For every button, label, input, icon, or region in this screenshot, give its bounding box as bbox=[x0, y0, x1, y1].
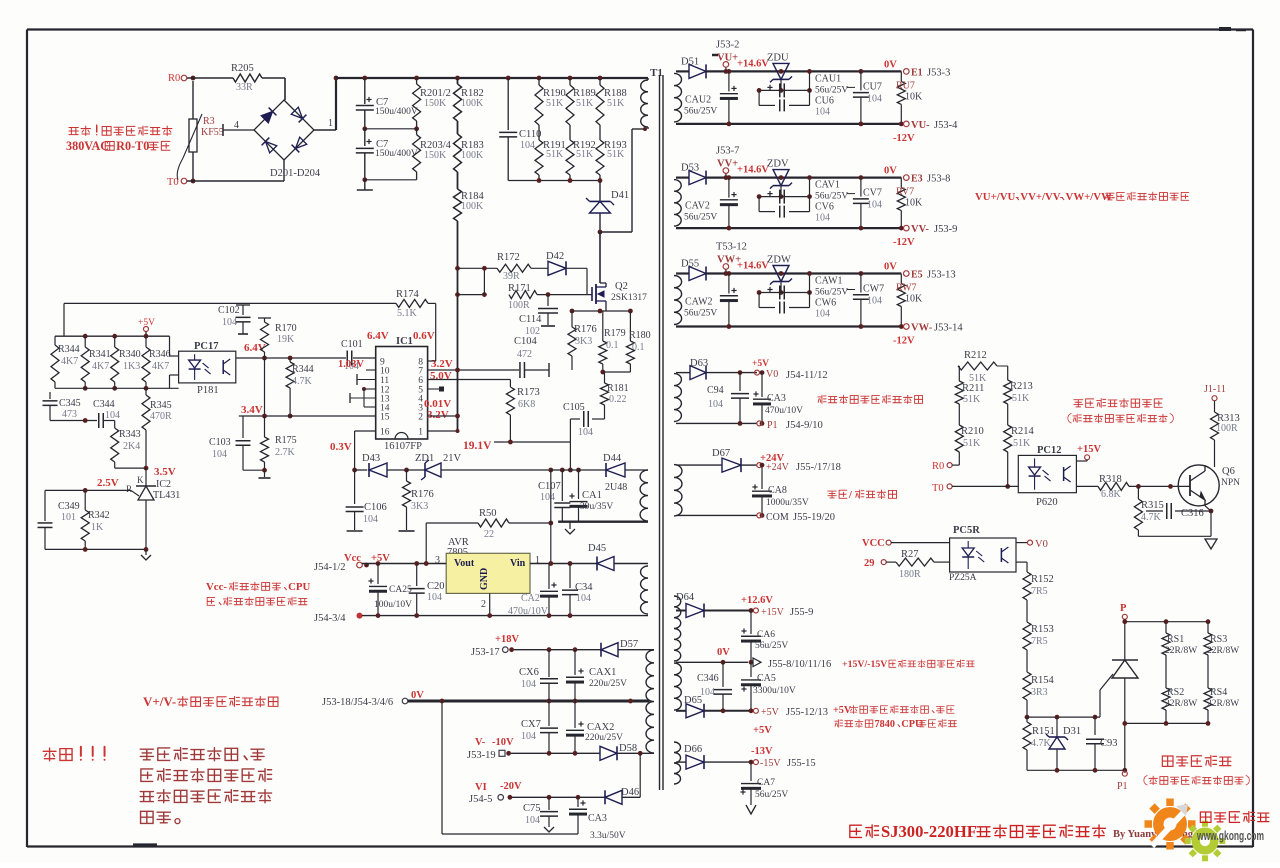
svg-text:+24V: +24V bbox=[766, 462, 790, 473]
svg-text:6: 6 bbox=[418, 376, 423, 386]
svg-text:3: 3 bbox=[435, 555, 440, 566]
svg-text:Vcc-: Vcc- bbox=[206, 581, 227, 593]
svg-text:PC17: PC17 bbox=[194, 341, 219, 352]
svg-text:0.3V: 0.3V bbox=[330, 441, 352, 453]
svg-text:16: 16 bbox=[380, 428, 390, 438]
svg-text:R171: R171 bbox=[508, 283, 531, 294]
svg-text:C316: C316 bbox=[1181, 508, 1204, 519]
svg-text:Q6: Q6 bbox=[1222, 466, 1235, 477]
svg-text:RU7: RU7 bbox=[896, 80, 915, 91]
svg-text:D44: D44 bbox=[603, 453, 622, 464]
svg-text:C106: C106 bbox=[364, 502, 387, 513]
svg-text:51K: 51K bbox=[963, 438, 981, 449]
svg-text:D65: D65 bbox=[684, 695, 702, 706]
svg-text:CA2: CA2 bbox=[521, 593, 540, 604]
svg-text:0V: 0V bbox=[884, 166, 897, 177]
svg-text:22: 22 bbox=[484, 529, 494, 540]
svg-text:R0: R0 bbox=[168, 73, 180, 84]
svg-text:C104: C104 bbox=[514, 336, 538, 347]
svg-text:R344: R344 bbox=[58, 344, 80, 355]
svg-text:T0: T0 bbox=[932, 483, 944, 494]
svg-text:KF55: KF55 bbox=[201, 127, 224, 138]
svg-text:+15V: +15V bbox=[1077, 444, 1101, 455]
svg-text:J55-12/13: J55-12/13 bbox=[786, 707, 828, 718]
svg-text:R0: R0 bbox=[932, 461, 944, 472]
svg-text:CPU: CPU bbox=[288, 581, 310, 593]
svg-text:R341: R341 bbox=[89, 349, 111, 360]
svg-text:D57: D57 bbox=[620, 639, 638, 650]
svg-text:2U48: 2U48 bbox=[605, 482, 627, 493]
svg-text:220u/25V: 220u/25V bbox=[585, 733, 623, 743]
svg-text:D41: D41 bbox=[611, 190, 629, 201]
svg-text:R176: R176 bbox=[574, 324, 597, 335]
svg-text:RS1: RS1 bbox=[1167, 634, 1184, 645]
svg-text:GND: GND bbox=[479, 568, 490, 590]
svg-text:C110: C110 bbox=[519, 129, 541, 140]
svg-text:CAX1: CAX1 bbox=[589, 667, 616, 678]
svg-text:R211: R211 bbox=[962, 383, 984, 394]
svg-text:C345: C345 bbox=[59, 398, 81, 409]
svg-text:J53-7: J53-7 bbox=[716, 146, 739, 157]
svg-text:J55-15: J55-15 bbox=[787, 758, 816, 769]
svg-text:4K7: 4K7 bbox=[152, 361, 169, 372]
svg-text:CAV2: CAV2 bbox=[685, 201, 710, 212]
svg-text:C102: C102 bbox=[218, 305, 240, 316]
svg-text:4K7: 4K7 bbox=[61, 356, 78, 367]
svg-text:J54-1/2: J54-1/2 bbox=[314, 562, 346, 573]
svg-text:D63: D63 bbox=[690, 358, 708, 369]
svg-text:1.03V: 1.03V bbox=[338, 359, 364, 370]
svg-text:CAU1: CAU1 bbox=[815, 73, 841, 84]
svg-text:5.1K: 5.1K bbox=[397, 308, 418, 319]
svg-text:R315: R315 bbox=[1141, 500, 1164, 511]
svg-text:RS2: RS2 bbox=[1167, 687, 1184, 698]
svg-text:R210: R210 bbox=[961, 426, 984, 437]
svg-text:R212: R212 bbox=[964, 350, 987, 361]
svg-text:51K: 51K bbox=[1013, 438, 1031, 449]
svg-text:104: 104 bbox=[521, 731, 536, 742]
svg-text:3.2V: 3.2V bbox=[427, 409, 449, 421]
svg-text:100K: 100K bbox=[461, 98, 484, 109]
svg-text:104: 104 bbox=[520, 140, 535, 151]
svg-text:K: K bbox=[137, 475, 144, 485]
svg-text:104: 104 bbox=[867, 200, 882, 211]
svg-text:D58: D58 bbox=[619, 743, 637, 754]
svg-text:1: 1 bbox=[418, 428, 423, 438]
svg-text:51K: 51K bbox=[546, 98, 564, 109]
svg-text:470R: 470R bbox=[150, 411, 172, 422]
svg-text:7: 7 bbox=[418, 367, 423, 377]
svg-text:104: 104 bbox=[212, 449, 227, 460]
svg-text:E3: E3 bbox=[911, 174, 923, 185]
svg-text:56u/25V: 56u/25V bbox=[684, 106, 717, 116]
svg-text:R342: R342 bbox=[88, 510, 110, 521]
svg-text:CAW1: CAW1 bbox=[815, 276, 843, 287]
svg-text:104: 104 bbox=[540, 492, 555, 503]
svg-text:39R: 39R bbox=[503, 271, 520, 282]
svg-text:33R: 33R bbox=[236, 82, 253, 93]
svg-text:R0-T0: R0-T0 bbox=[116, 139, 149, 153]
svg-text:J53-2: J53-2 bbox=[716, 39, 739, 50]
svg-text:0V: 0V bbox=[717, 647, 730, 658]
svg-text:21V: 21V bbox=[443, 453, 462, 464]
svg-text:IC2: IC2 bbox=[156, 479, 171, 490]
svg-text:CAV1: CAV1 bbox=[815, 180, 840, 191]
svg-text:0V: 0V bbox=[884, 59, 897, 70]
svg-text:51K: 51K bbox=[1012, 393, 1030, 404]
svg-text:0.1: 0.1 bbox=[632, 342, 645, 353]
svg-text:C20: C20 bbox=[427, 581, 445, 592]
svg-text:R205: R205 bbox=[231, 63, 254, 74]
svg-text:220u/25V: 220u/25V bbox=[589, 679, 627, 689]
svg-text:CV6: CV6 bbox=[815, 202, 834, 213]
svg-text:VU+/VU-: VU+/VU- bbox=[975, 191, 1019, 203]
svg-text:380VAC: 380VAC bbox=[66, 139, 109, 153]
svg-text:J53-18/J54-3/4/6: J53-18/J54-3/4/6 bbox=[322, 697, 393, 708]
svg-text:R181: R181 bbox=[607, 383, 629, 394]
svg-text:T1: T1 bbox=[650, 67, 663, 79]
svg-text:PC12: PC12 bbox=[1037, 445, 1062, 456]
svg-text:+5V: +5V bbox=[752, 359, 769, 369]
svg-text:Vout: Vout bbox=[454, 558, 475, 569]
svg-text:V+/V-: V+/V- bbox=[143, 694, 176, 709]
svg-text:-20V: -20V bbox=[500, 781, 522, 792]
svg-text:3.3u/50V: 3.3u/50V bbox=[590, 831, 626, 841]
svg-text:22R/8W: 22R/8W bbox=[1165, 699, 1197, 709]
svg-text:56u/25V: 56u/25V bbox=[755, 641, 788, 651]
svg-text:Q2: Q2 bbox=[615, 281, 628, 292]
svg-text:P: P bbox=[1120, 603, 1127, 614]
svg-text:CV7: CV7 bbox=[863, 188, 882, 199]
svg-text:T0: T0 bbox=[167, 177, 179, 188]
svg-text:2.7K: 2.7K bbox=[275, 447, 296, 458]
svg-text:150u/400V: 150u/400V bbox=[375, 149, 418, 159]
svg-text:2.5V: 2.5V bbox=[97, 477, 119, 489]
svg-text:100u/10V: 100u/10V bbox=[374, 600, 412, 610]
svg-text:P181: P181 bbox=[197, 385, 219, 396]
svg-text:ZDW: ZDW bbox=[767, 255, 791, 266]
svg-text:C349: C349 bbox=[58, 501, 80, 512]
svg-text:150u/400V: 150u/400V bbox=[375, 107, 418, 117]
svg-text:1K3: 1K3 bbox=[123, 361, 140, 372]
svg-text:R213: R213 bbox=[1010, 381, 1033, 392]
svg-text:CA3: CA3 bbox=[767, 393, 786, 404]
svg-text:R175: R175 bbox=[275, 435, 297, 446]
svg-text:R179: R179 bbox=[604, 328, 626, 339]
svg-text:-12V: -12V bbox=[893, 336, 915, 347]
svg-text:C346: C346 bbox=[697, 673, 719, 684]
svg-text:VU-: VU- bbox=[911, 120, 930, 131]
svg-text:+15V: +15V bbox=[761, 607, 785, 618]
svg-text:CU6: CU6 bbox=[815, 95, 834, 106]
svg-text:SJ300-220HF: SJ300-220HF bbox=[881, 822, 977, 841]
svg-text:10K: 10K bbox=[905, 91, 923, 102]
svg-text:104: 104 bbox=[525, 815, 540, 826]
svg-text:J54-5: J54-5 bbox=[469, 794, 492, 805]
svg-text:R214: R214 bbox=[1011, 426, 1035, 437]
svg-text:P1: P1 bbox=[767, 420, 778, 431]
svg-text:R346: R346 bbox=[149, 349, 171, 360]
svg-text:J53-14: J53-14 bbox=[934, 323, 963, 334]
svg-text:D51: D51 bbox=[681, 56, 699, 67]
svg-text:CX7: CX7 bbox=[521, 719, 541, 730]
svg-text:CA1: CA1 bbox=[582, 490, 602, 501]
svg-text:100K: 100K bbox=[461, 150, 484, 161]
svg-text:V-: V- bbox=[475, 737, 486, 748]
svg-text:J53-13: J53-13 bbox=[927, 270, 956, 281]
svg-text:D31: D31 bbox=[1063, 726, 1081, 737]
svg-text:56u/25V: 56u/25V bbox=[684, 309, 717, 319]
svg-text:CX6: CX6 bbox=[519, 667, 539, 678]
svg-text:5.0V: 5.0V bbox=[430, 370, 452, 382]
svg-text:E1: E1 bbox=[911, 67, 923, 78]
svg-text:J53-8: J53-8 bbox=[927, 174, 950, 185]
svg-text:R180: R180 bbox=[629, 330, 651, 341]
svg-text:D43: D43 bbox=[362, 453, 380, 464]
svg-text:+14.6V: +14.6V bbox=[737, 58, 769, 69]
svg-text:J53-17: J53-17 bbox=[471, 647, 500, 658]
svg-text:D46: D46 bbox=[621, 787, 639, 798]
svg-text:-10V: -10V bbox=[492, 737, 514, 748]
svg-text:104: 104 bbox=[867, 296, 882, 307]
svg-text:J53-9: J53-9 bbox=[934, 224, 957, 235]
svg-text:ZD1: ZD1 bbox=[415, 453, 434, 464]
svg-text:0V: 0V bbox=[884, 262, 897, 273]
svg-text:R173: R173 bbox=[517, 387, 540, 398]
svg-text:+14.6V: +14.6V bbox=[737, 165, 769, 176]
svg-text:4.7K: 4.7K bbox=[292, 376, 313, 387]
svg-text:3K3: 3K3 bbox=[411, 501, 428, 512]
svg-text:CA7: CA7 bbox=[757, 778, 775, 788]
svg-text:7R5: 7R5 bbox=[1031, 636, 1048, 647]
svg-text:51K: 51K bbox=[607, 149, 625, 160]
svg-text:104: 104 bbox=[815, 106, 830, 117]
svg-text:CAX2: CAX2 bbox=[587, 722, 614, 733]
svg-text:R174: R174 bbox=[396, 289, 420, 300]
svg-text:+18V: +18V bbox=[495, 634, 519, 645]
svg-text:T53-12: T53-12 bbox=[716, 242, 747, 253]
svg-text:E5: E5 bbox=[911, 270, 923, 281]
svg-text:19K: 19K bbox=[277, 334, 295, 345]
svg-text:4.7K: 4.7K bbox=[1141, 512, 1162, 523]
svg-text:6.4V: 6.4V bbox=[367, 330, 389, 342]
svg-text:R176: R176 bbox=[411, 489, 434, 500]
svg-text:-12V: -12V bbox=[893, 133, 915, 144]
svg-text:472: 472 bbox=[517, 349, 532, 360]
svg-text:V0: V0 bbox=[1035, 539, 1048, 550]
svg-text:J53-3: J53-3 bbox=[927, 67, 950, 78]
svg-text:CA5: CA5 bbox=[757, 673, 776, 684]
svg-text:IC1: IC1 bbox=[396, 336, 413, 347]
svg-text:Vin: Vin bbox=[510, 558, 526, 569]
svg-text:C94: C94 bbox=[707, 385, 724, 396]
svg-text:+15V/-15V: +15V/-15V bbox=[842, 659, 887, 670]
svg-text:7R5: 7R5 bbox=[1031, 586, 1048, 597]
svg-text:CU7: CU7 bbox=[863, 81, 882, 92]
svg-text:104: 104 bbox=[105, 410, 120, 421]
svg-text:0.22: 0.22 bbox=[609, 394, 627, 405]
svg-text:D66: D66 bbox=[684, 744, 702, 755]
svg-text:V0: V0 bbox=[766, 369, 778, 380]
svg-text:ZDU: ZDU bbox=[767, 52, 789, 63]
svg-text:100K: 100K bbox=[461, 201, 484, 212]
svg-text:104: 104 bbox=[867, 93, 882, 104]
svg-text:C103: C103 bbox=[209, 437, 231, 448]
svg-text:C101: C101 bbox=[341, 339, 363, 350]
svg-text:3.5V: 3.5V bbox=[154, 466, 176, 478]
svg-text:CAU2: CAU2 bbox=[685, 94, 711, 105]
svg-text:104: 104 bbox=[578, 427, 593, 438]
svg-text:1: 1 bbox=[535, 555, 540, 566]
svg-text:+5V: +5V bbox=[761, 707, 780, 718]
svg-text:www.gkong.com: www.gkong.com bbox=[1196, 829, 1264, 843]
svg-text:51K: 51K bbox=[576, 149, 594, 160]
svg-text:C93: C93 bbox=[1100, 738, 1118, 749]
svg-text:J1-11: J1-11 bbox=[1204, 384, 1226, 395]
svg-text:100R: 100R bbox=[1216, 423, 1238, 434]
svg-text:R344: R344 bbox=[292, 364, 314, 375]
svg-text:VV+/VV-: VV+/VV- bbox=[1020, 191, 1064, 203]
svg-text:10K: 10K bbox=[905, 198, 923, 209]
svg-text:J55-/17/18: J55-/17/18 bbox=[796, 462, 841, 473]
svg-text:RS3: RS3 bbox=[1210, 634, 1227, 645]
svg-text:4.7K: 4.7K bbox=[1031, 738, 1052, 749]
svg-text:CA25: CA25 bbox=[389, 585, 412, 595]
svg-text:+5V: +5V bbox=[371, 553, 390, 564]
svg-text:3.2V: 3.2V bbox=[431, 358, 453, 370]
svg-text:180R: 180R bbox=[899, 569, 921, 580]
svg-text:6.8K: 6.8K bbox=[1101, 489, 1122, 500]
svg-text:2: 2 bbox=[481, 599, 486, 610]
svg-text:R151: R151 bbox=[1032, 726, 1055, 737]
svg-text:R50: R50 bbox=[479, 508, 497, 519]
svg-text:CA6: CA6 bbox=[757, 630, 775, 640]
svg-text:104: 104 bbox=[363, 514, 378, 525]
svg-text:J53-19: J53-19 bbox=[467, 750, 496, 761]
svg-text:D55: D55 bbox=[681, 259, 699, 270]
svg-text:19.1V: 19.1V bbox=[463, 440, 492, 452]
svg-text:104: 104 bbox=[700, 687, 715, 698]
svg-text:15: 15 bbox=[380, 413, 390, 423]
svg-text:473: 473 bbox=[62, 409, 77, 420]
svg-text:VV-: VV- bbox=[911, 224, 929, 235]
svg-text:VCC: VCC bbox=[862, 538, 885, 549]
svg-text:J53-4: J53-4 bbox=[934, 120, 958, 131]
svg-text:TL431: TL431 bbox=[153, 490, 180, 501]
svg-text:51K: 51K bbox=[963, 394, 981, 405]
svg-text:R27: R27 bbox=[901, 549, 919, 560]
svg-text:-15V: -15V bbox=[760, 758, 781, 769]
svg-text:104: 104 bbox=[708, 399, 723, 410]
svg-text:104: 104 bbox=[427, 592, 442, 603]
svg-text:+5V: +5V bbox=[753, 725, 772, 736]
svg-text:PZ25A: PZ25A bbox=[949, 573, 977, 583]
svg-text:C107: C107 bbox=[538, 481, 561, 492]
svg-text:J55-8/10/11/16: J55-8/10/11/16 bbox=[768, 659, 831, 670]
svg-text:C34: C34 bbox=[575, 582, 593, 593]
svg-text:102: 102 bbox=[525, 326, 540, 337]
svg-text:3R3: 3R3 bbox=[1031, 687, 1048, 698]
svg-text:16107FP: 16107FP bbox=[384, 441, 422, 452]
svg-text:R345: R345 bbox=[150, 400, 172, 411]
svg-text:3.4V: 3.4V bbox=[241, 404, 263, 416]
svg-text:D64: D64 bbox=[676, 592, 695, 603]
svg-text:4K7: 4K7 bbox=[92, 361, 109, 372]
svg-text:C75: C75 bbox=[523, 803, 541, 814]
svg-text:CW6: CW6 bbox=[815, 298, 836, 309]
svg-text:C114: C114 bbox=[519, 314, 542, 325]
svg-text:10: 10 bbox=[380, 367, 390, 377]
svg-text:6K8: 6K8 bbox=[518, 399, 535, 410]
svg-text:R154: R154 bbox=[1031, 675, 1055, 686]
svg-text:R318: R318 bbox=[1099, 474, 1122, 485]
svg-text:150K: 150K bbox=[424, 150, 447, 161]
svg-text:470u/10V: 470u/10V bbox=[765, 406, 803, 416]
svg-text:R172: R172 bbox=[497, 252, 520, 263]
svg-text:D201-D204: D201-D204 bbox=[270, 168, 321, 179]
svg-text:56u/25V: 56u/25V bbox=[684, 213, 717, 223]
svg-text:C105: C105 bbox=[563, 402, 585, 413]
svg-text:22R/8W: 22R/8W bbox=[1207, 646, 1239, 656]
svg-text:1K: 1K bbox=[91, 522, 104, 533]
svg-text:10K: 10K bbox=[905, 294, 923, 305]
svg-text:CW7: CW7 bbox=[863, 284, 884, 295]
svg-text:R340: R340 bbox=[119, 349, 141, 360]
svg-text:3300u/10V: 3300u/10V bbox=[753, 686, 796, 696]
svg-text:+5V: +5V bbox=[833, 705, 852, 716]
svg-text:2: 2 bbox=[418, 413, 423, 423]
svg-text:C344: C344 bbox=[93, 399, 115, 410]
svg-text:11: 11 bbox=[380, 376, 389, 386]
svg-text:56u/25V: 56u/25V bbox=[815, 288, 848, 298]
svg-text:NPN: NPN bbox=[1221, 478, 1240, 488]
svg-text:39u/35V: 39u/35V bbox=[580, 502, 613, 512]
svg-text:56u/25V: 56u/25V bbox=[815, 192, 848, 202]
svg-text:J54-11/12: J54-11/12 bbox=[786, 370, 828, 381]
svg-text:22R/8W: 22R/8W bbox=[1207, 699, 1239, 709]
svg-text:CAW2: CAW2 bbox=[685, 297, 713, 308]
svg-text:51K: 51K bbox=[607, 98, 625, 109]
svg-text:RW7: RW7 bbox=[896, 283, 917, 294]
svg-text:P1: P1 bbox=[1117, 781, 1128, 792]
svg-text:104: 104 bbox=[521, 679, 536, 690]
svg-text:104: 104 bbox=[576, 593, 591, 604]
svg-text:J54-9/10: J54-9/10 bbox=[786, 420, 823, 431]
svg-text:VI: VI bbox=[475, 782, 487, 793]
svg-text:56u/25V: 56u/25V bbox=[755, 790, 788, 800]
svg-text:51K: 51K bbox=[546, 149, 564, 160]
svg-text:0.1: 0.1 bbox=[606, 340, 619, 351]
svg-text:PC5R: PC5R bbox=[953, 525, 980, 536]
svg-text:104: 104 bbox=[815, 213, 830, 224]
svg-text:104: 104 bbox=[815, 309, 830, 320]
svg-text:D42: D42 bbox=[546, 251, 564, 262]
svg-text:+12.6V: +12.6V bbox=[741, 595, 773, 606]
svg-text:D67: D67 bbox=[712, 448, 730, 459]
svg-text:ZDV: ZDV bbox=[767, 159, 789, 170]
svg-text:+14.6V: +14.6V bbox=[737, 261, 769, 272]
svg-text:0.6V: 0.6V bbox=[413, 330, 435, 342]
svg-text:VW-: VW- bbox=[911, 323, 933, 334]
svg-text:D45: D45 bbox=[588, 543, 606, 554]
svg-text:104: 104 bbox=[222, 317, 237, 328]
svg-text:COM: COM bbox=[766, 512, 789, 523]
svg-text:R343: R343 bbox=[119, 429, 141, 440]
svg-text:D53: D53 bbox=[681, 163, 699, 174]
svg-text:2K4: 2K4 bbox=[123, 441, 140, 452]
svg-text:2SK1317: 2SK1317 bbox=[611, 293, 647, 303]
svg-text:1: 1 bbox=[328, 118, 333, 129]
